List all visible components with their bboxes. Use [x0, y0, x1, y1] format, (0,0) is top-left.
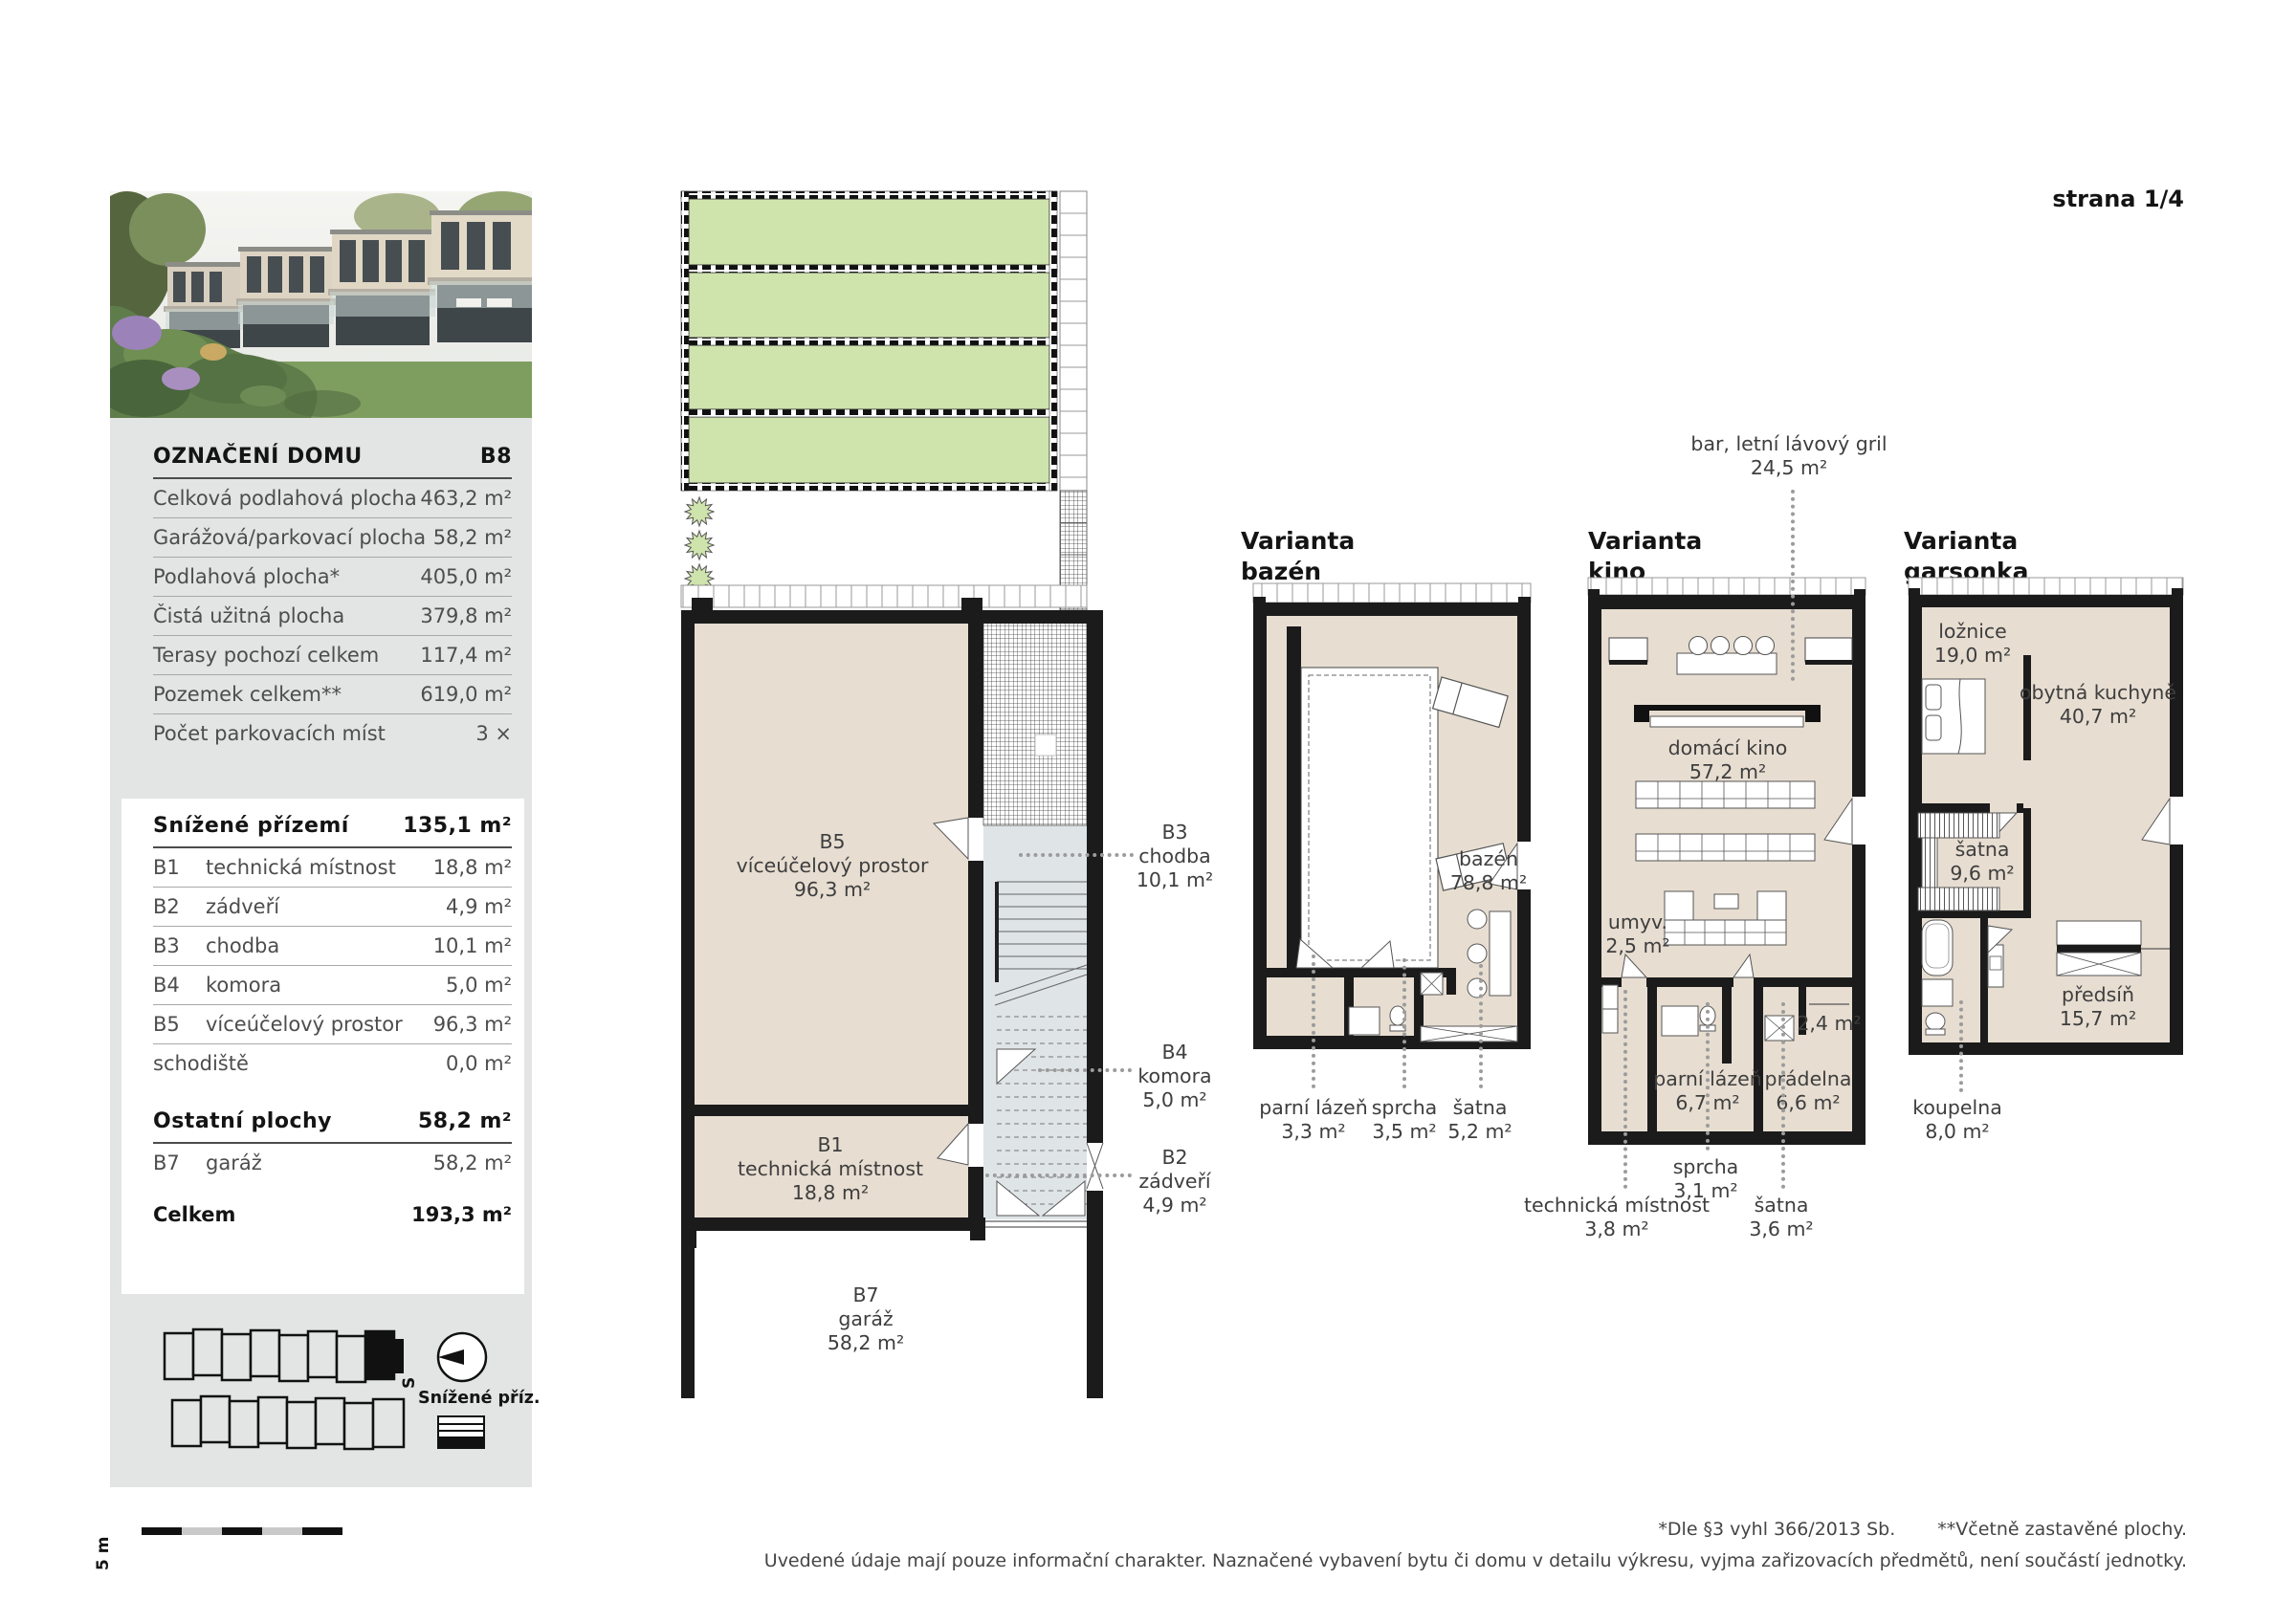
room-area: 8,0 m²	[1912, 1120, 2002, 1144]
room-label: schodiště	[153, 1052, 446, 1075]
cinema-bar-label: bar, letní lávový gril 24,5 m²	[1690, 432, 1887, 480]
row-label: Počet parkovacích míst	[153, 722, 475, 745]
footnote-b: **Včetně zastavěné plochy.	[1937, 1519, 2187, 1540]
room-area: 3,8 m²	[1524, 1217, 1710, 1241]
room-name: technická místnost	[1524, 1194, 1710, 1217]
room-code: B5	[153, 1013, 206, 1036]
ground-floor-legend-icon	[437, 1415, 485, 1449]
room-name: šatna	[1749, 1194, 1813, 1217]
row-label: Podlahová plocha*	[153, 565, 420, 588]
main-floor-plan	[660, 186, 1199, 1406]
disclaimer: Uvedené údaje mají pouze informační char…	[764, 1550, 2187, 1571]
row-label: Garážová/parkovací plocha	[153, 526, 433, 549]
grand-total-label: Celkem	[153, 1203, 411, 1226]
cinema-wardrobe-label: šatna 3,6 m²	[1749, 1194, 1813, 1241]
room-name: koupelna	[1912, 1096, 2002, 1120]
room-area: 24,5 m²	[1690, 456, 1887, 480]
row-label: Celková podlahová plocha	[153, 487, 420, 510]
summary-row: Pozemek celkem**619,0 m²	[153, 675, 512, 714]
studio-hall-label: předsíň 15,7 m²	[2060, 983, 2136, 1031]
room-name: domácí kino	[1668, 736, 1788, 760]
leader-b2	[985, 1173, 1132, 1177]
row-value: 379,8 m²	[420, 604, 512, 627]
room-name: zádveří	[1138, 1170, 1210, 1194]
room-code: B7	[828, 1283, 904, 1307]
room-area: 57,2 m²	[1668, 760, 1788, 784]
other-areas-title: Ostatní plochy	[153, 1109, 332, 1133]
room-name: chodba	[1137, 844, 1213, 868]
room-label-b7: B7 garáž 58,2 m²	[828, 1283, 904, 1355]
room-code: B7	[153, 1151, 206, 1174]
room-label: komora	[206, 974, 446, 997]
room-value: 5,0 m²	[446, 974, 512, 997]
studio-bedroom-label: ložnice 19,0 m²	[1934, 620, 2011, 668]
room-value: 0,0 m²	[446, 1052, 512, 1075]
variant-pool-plan	[1239, 574, 1555, 1109]
leader-cinema-tech	[1623, 990, 1627, 1189]
room-code: B4	[153, 974, 206, 997]
room-row: B4komora5,0 m²	[153, 966, 512, 1005]
row-label: Terasy pochozí celkem	[153, 644, 420, 667]
room-name: parní lázeň	[1259, 1096, 1367, 1120]
ground-floor-table: Snížené přízemí 135,1 m² B1technická mís…	[153, 814, 512, 1234]
room-name: obytná kuchyně	[2020, 681, 2176, 705]
pool-wardrobe-label: šatna 5,2 m²	[1447, 1096, 1512, 1144]
room-area: 3,3 m²	[1259, 1120, 1367, 1144]
room-label: zádveří	[206, 895, 446, 918]
callout-b4: B4 komora 5,0 m²	[1137, 1041, 1211, 1112]
scale-bar	[142, 1527, 342, 1535]
room-name: šatna	[1447, 1096, 1512, 1120]
variant-title-line1: Varianta	[1241, 526, 1355, 557]
room-name: víceúčelový prostor	[737, 854, 929, 878]
row-value: 58,2 m²	[433, 526, 512, 549]
summary-row: Čistá užitná plocha379,8 m²	[153, 597, 512, 636]
callout-b3: B3 chodba 10,1 m²	[1137, 821, 1213, 892]
room-name: prádelna	[1765, 1067, 1852, 1091]
room-code: B5	[737, 830, 929, 854]
studio-kitchen-label: obytná kuchyně 40,7 m²	[2020, 681, 2176, 729]
leader-pool-shower	[1402, 958, 1406, 1088]
variant-title-line1: Varianta	[1588, 526, 1702, 557]
room-row: B2zádveří4,9 m²	[153, 888, 512, 927]
compass-icon	[432, 1329, 490, 1387]
row-label: Čistá užitná plocha	[153, 604, 420, 627]
room-code: B3	[153, 934, 206, 957]
page-number: strana 1/4	[2052, 186, 2184, 212]
row-value: 117,4 m²	[420, 644, 512, 667]
leader-b3	[1019, 853, 1134, 857]
house-id: B8	[480, 445, 512, 469]
grand-total-value: 193,3 m²	[411, 1203, 512, 1226]
room-name: šatna	[1950, 838, 2014, 862]
footnote-a: *Dle §3 vyhl 366/2013 Sb.	[1658, 1519, 1895, 1540]
ground-floor-total: 135,1 m²	[403, 814, 512, 838]
room-code: B1	[153, 856, 206, 879]
room-area: 40,7 m²	[2020, 705, 2176, 729]
cinema-laundry-label: prádelna 6,6 m²	[1765, 1067, 1852, 1115]
row-value: 619,0 m²	[420, 683, 512, 706]
room-name: bar, letní lávový gril	[1690, 432, 1887, 456]
room-code: B3	[1137, 821, 1213, 844]
other-areas-total: 58,2 m²	[418, 1109, 512, 1133]
room-row: B5víceúčelový prostor96,3 m²	[153, 1005, 512, 1044]
room-row: schodiště0,0 m²	[153, 1044, 512, 1083]
room-area: 96,3 m²	[737, 878, 929, 902]
leader-pool-steam	[1312, 954, 1315, 1088]
room-area: 15,7 m²	[2060, 1007, 2136, 1031]
room-name: umyv.	[1605, 910, 1669, 934]
room-value: 18,8 m²	[433, 856, 512, 879]
compass-north-label: S	[400, 1377, 419, 1389]
room-name: sprcha	[1673, 1155, 1739, 1179]
callout-b2: B2 zádveří 4,9 m²	[1138, 1146, 1210, 1217]
room-label: technická místnost	[206, 856, 433, 879]
area-table-card: Snížené přízemí 135,1 m² B1technická mís…	[121, 799, 524, 1294]
room-name: technická místnost	[738, 1157, 923, 1181]
room-area: 18,8 m²	[738, 1181, 923, 1205]
room-area: 5,0 m²	[1137, 1088, 1211, 1112]
room-name: ložnice	[1934, 620, 2011, 644]
room-value: 96,3 m²	[433, 1013, 512, 1036]
room-area: 4,9 m²	[1138, 1194, 1210, 1217]
room-name: sprcha	[1372, 1096, 1438, 1120]
room-label-b1: B1 technická místnost 18,8 m²	[738, 1133, 923, 1205]
project-photo-illustration	[110, 191, 532, 418]
row-value: 405,0 m²	[420, 565, 512, 588]
ground-floor-title: Snížené přízemí	[153, 814, 349, 838]
summary-row: Počet parkovacích míst3 ×	[153, 714, 512, 753]
room-area: 19,0 m²	[1934, 644, 2011, 668]
row-value: 463,2 m²	[420, 487, 512, 510]
cinema-room-label: domácí kino 57,2 m²	[1668, 736, 1788, 784]
summary-table: OZNAČENÍ DOMU B8 Celková podlahová ploch…	[153, 445, 512, 753]
ground-floor-header: Snížené přízemí 135,1 m²	[153, 814, 512, 848]
site-legend-title: Snížené příz.	[418, 1389, 541, 1408]
summary-row: Celková podlahová plocha463,2 m²	[153, 479, 512, 518]
leader-studio-bath	[1959, 1000, 1963, 1092]
variant-title-line1: Varianta	[1904, 526, 2028, 557]
summary-row: Podlahová plocha*405,0 m²	[153, 558, 512, 597]
pool-room-label: bazén 78,8 m²	[1450, 847, 1527, 895]
project-photo	[110, 191, 532, 418]
room-area: 58,2 m²	[828, 1331, 904, 1355]
scale-label: 5 m	[94, 1537, 113, 1570]
room-row: B3chodba10,1 m²	[153, 927, 512, 966]
room-code: B4	[1137, 1041, 1211, 1064]
room-name: komora	[1137, 1064, 1211, 1088]
room-area: 6,6 m²	[1765, 1091, 1852, 1115]
room-row: B1technická místnost18,8 m²	[153, 848, 512, 888]
studio-wardrobe-label: šatna 9,6 m²	[1950, 838, 2014, 886]
room-area: 78,8 m²	[1450, 871, 1527, 895]
row-value: 3 ×	[475, 722, 512, 745]
room-name: bazén	[1450, 847, 1527, 871]
pool-shower-label: sprcha 3,5 m²	[1372, 1096, 1438, 1144]
site-plan	[143, 1320, 421, 1463]
summary-row: Garážová/parkovací plocha58,2 m²	[153, 518, 512, 558]
room-code: B1	[738, 1133, 923, 1157]
room-label: garáž	[206, 1151, 433, 1174]
room-code: B2	[1138, 1146, 1210, 1170]
room-area: 10,1 m²	[1137, 868, 1213, 892]
room-value: 10,1 m²	[433, 934, 512, 957]
leader-cinema-shower	[1706, 1002, 1710, 1151]
room-area: 5,2 m²	[1447, 1120, 1512, 1144]
other-areas-header: Ostatní plochy 58,2 m²	[153, 1109, 512, 1144]
summary-title: OZNAČENÍ DOMU	[153, 445, 363, 469]
room-area: 3,5 m²	[1372, 1120, 1438, 1144]
room-area: 3,6 m²	[1749, 1217, 1813, 1241]
room-name: garáž	[828, 1307, 904, 1331]
room-label-b5: B5 víceúčelový prostor 96,3 m²	[737, 830, 929, 902]
cinema-tech-label: technická místnost 3,8 m²	[1524, 1194, 1710, 1241]
footnotes: *Dle §3 vyhl 366/2013 Sb. **Včetně zasta…	[1658, 1519, 2187, 1540]
leader-b4	[1038, 1068, 1132, 1072]
summary-header: OZNAČENÍ DOMU B8	[153, 445, 512, 479]
room-code: B2	[153, 895, 206, 918]
studio-bath-label: koupelna 8,0 m²	[1912, 1096, 2002, 1144]
grand-total-row: Celkem193,3 m²	[153, 1195, 512, 1234]
room-area: 2,5 m²	[1605, 934, 1669, 958]
room-area: 9,6 m²	[1950, 862, 2014, 886]
room-value: 58,2 m²	[433, 1151, 512, 1174]
row-label: Pozemek celkem**	[153, 683, 420, 706]
room-name: předsíň	[2060, 983, 2136, 1007]
leader-cinema-bar	[1791, 490, 1795, 681]
pool-steam-label: parní lázeň 3,3 m²	[1259, 1096, 1367, 1144]
room-value: 4,9 m²	[446, 895, 512, 918]
leader-cinema-wardrobe	[1781, 1002, 1785, 1189]
brochure-page: OZNAČENÍ DOMU B8 Celková podlahová ploch…	[0, 0, 2296, 1623]
room-label: víceúčelový prostor	[206, 1013, 433, 1036]
cinema-niche-label: 2,4 m²	[1797, 1012, 1861, 1036]
room-row: B7garáž58,2 m²	[153, 1144, 512, 1182]
summary-row: Terasy pochozí celkem117,4 m²	[153, 636, 512, 675]
cinema-wash-label: umyv. 2,5 m²	[1605, 910, 1669, 958]
leader-pool-wardrobe	[1479, 964, 1483, 1088]
room-area: 2,4 m²	[1797, 1012, 1861, 1036]
room-label: chodba	[206, 934, 433, 957]
